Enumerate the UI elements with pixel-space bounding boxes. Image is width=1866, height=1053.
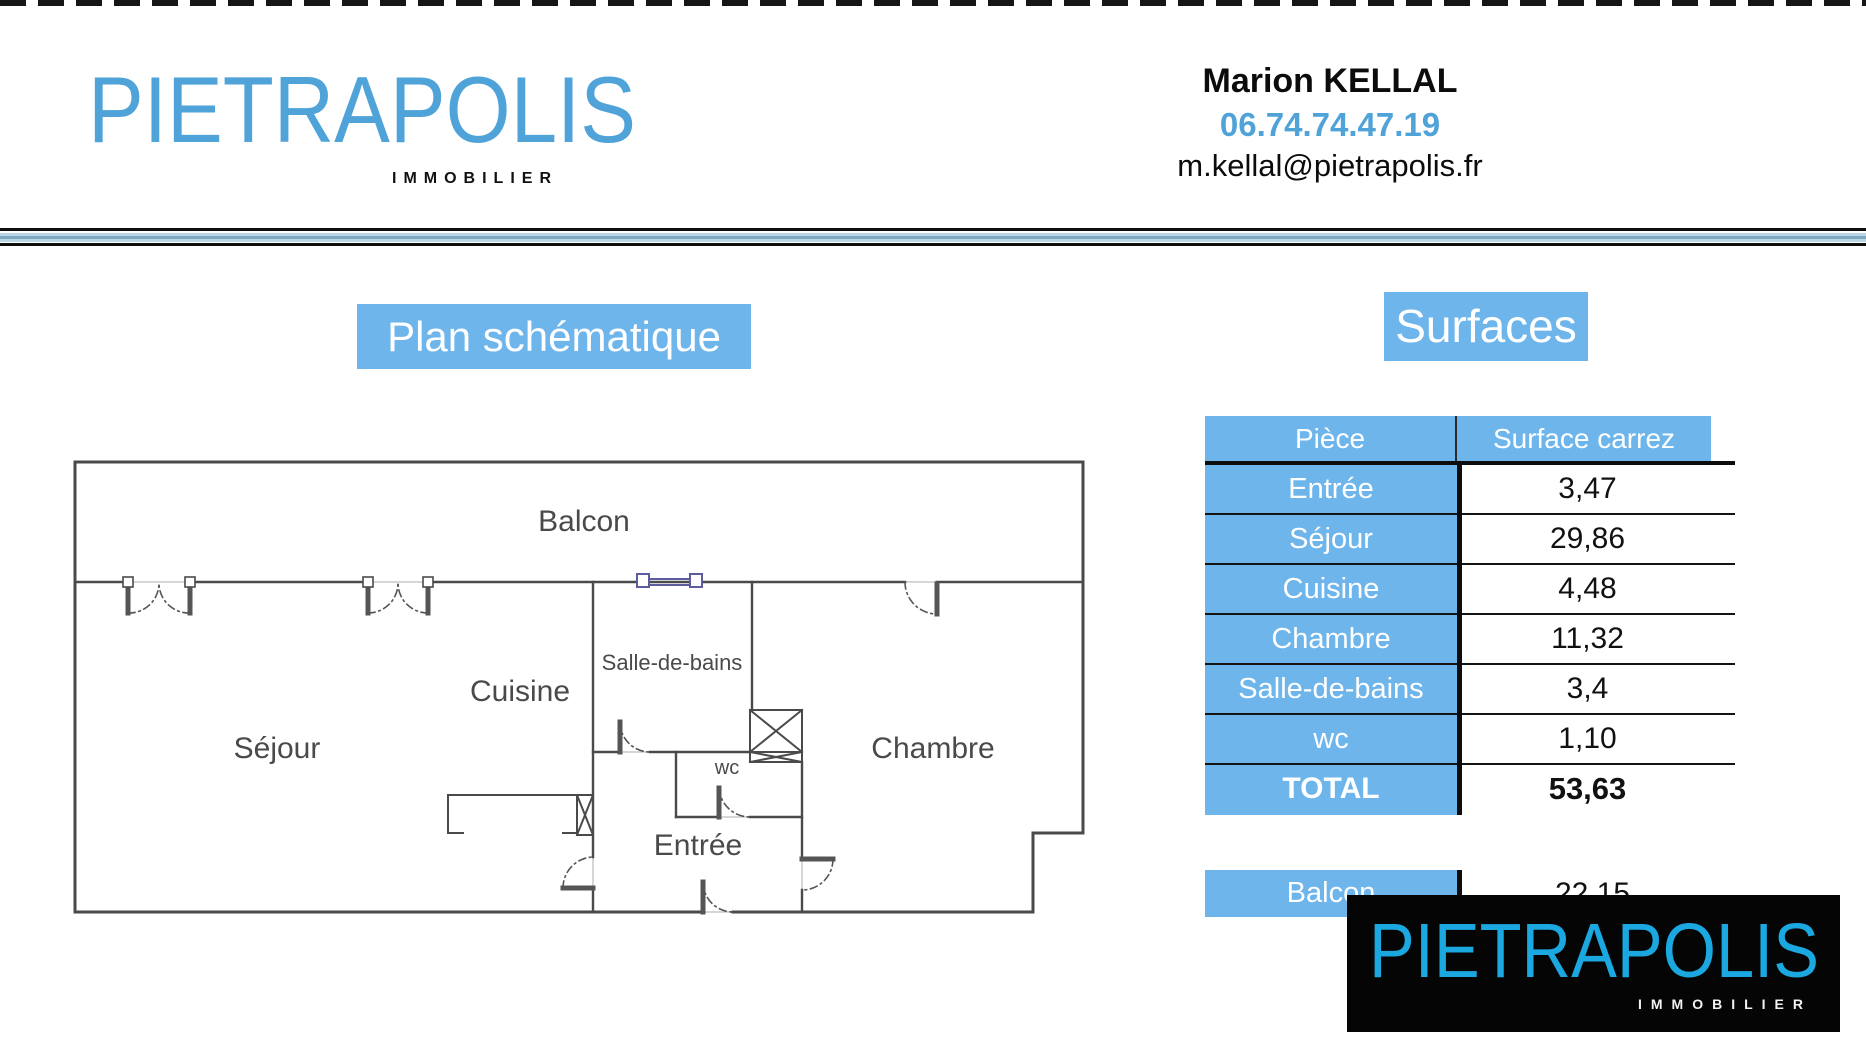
row-value: 11,32 bbox=[1462, 615, 1713, 663]
room-label-chambre: Chambre bbox=[853, 732, 1013, 766]
top-dashed-border bbox=[0, 0, 1866, 6]
table-row: wc 1,10 bbox=[1205, 715, 1735, 765]
footer-logo: PIETRAPOLIS bbox=[1347, 895, 1840, 995]
agent-email: m.kellal@pietrapolis.fr bbox=[1050, 148, 1610, 184]
table-total-row: TOTAL 53,63 bbox=[1205, 765, 1735, 815]
room-label-wc: wc bbox=[687, 757, 767, 780]
french-door-2-leaves bbox=[368, 586, 428, 613]
row-value: 4,48 bbox=[1462, 565, 1713, 613]
agent-name: Marion KELLAL bbox=[1050, 62, 1610, 101]
room-label-salle-de-bains: Salle-de-bains bbox=[584, 650, 760, 676]
surfaces-title-badge: Surfaces bbox=[1384, 292, 1588, 361]
plan-title-badge: Plan schématique bbox=[357, 304, 751, 369]
table-row: Séjour 29,86 bbox=[1205, 515, 1735, 565]
surfaces-table: Pièce Surface carrez Entrée 3,47 Séjour … bbox=[1205, 416, 1735, 815]
surfaces-table-header: Pièce Surface carrez bbox=[1205, 416, 1735, 461]
row-value: 3,47 bbox=[1462, 465, 1713, 513]
table-column-divider bbox=[1457, 465, 1462, 815]
room-label-sejour: Séjour bbox=[197, 732, 357, 766]
agent-phone: 06.74.74.47.19 bbox=[1050, 106, 1610, 144]
room-label-cuisine: Cuisine bbox=[440, 675, 600, 709]
row-label: Cuisine bbox=[1205, 565, 1457, 613]
table-row: Chambre 11,32 bbox=[1205, 615, 1735, 665]
french-door-1-leaves bbox=[128, 586, 190, 613]
brand-tagline: IMMOBILIER bbox=[392, 170, 602, 188]
brand-logo-text: PIETRAPOLIS bbox=[88, 57, 636, 162]
row-label: Entrée bbox=[1205, 465, 1457, 513]
column-header-piece: Pièce bbox=[1205, 416, 1457, 461]
brand-logo: PIETRAPOLIS bbox=[88, 52, 658, 162]
row-label: Chambre bbox=[1205, 615, 1457, 663]
row-value: 3,4 bbox=[1462, 665, 1713, 713]
window-symbol bbox=[637, 574, 702, 587]
room-label-balcon: Balcon bbox=[504, 505, 664, 539]
total-label: TOTAL bbox=[1205, 765, 1457, 815]
document-page: PIETRAPOLIS IMMOBILIER Marion KELLAL 06.… bbox=[0, 0, 1866, 1053]
row-label: wc bbox=[1205, 715, 1457, 763]
footer-logo-tagline: IMMOBILIER bbox=[1638, 996, 1812, 1012]
total-value: 53,63 bbox=[1462, 765, 1713, 815]
kitchen-counter bbox=[448, 795, 577, 833]
door-hinge-blocks bbox=[123, 577, 433, 587]
header-divider-top bbox=[0, 228, 1866, 231]
kitchen-hatched-box bbox=[577, 795, 593, 835]
table-row: Cuisine 4,48 bbox=[1205, 565, 1735, 615]
header-divider-blue bbox=[0, 233, 1866, 242]
header-divider-bottom bbox=[0, 243, 1866, 246]
row-value: 29,86 bbox=[1462, 515, 1713, 563]
footer-logo-text: PIETRAPOLIS bbox=[1369, 908, 1819, 994]
table-row: Salle-de-bains 3,4 bbox=[1205, 665, 1735, 715]
footer-logo-box: PIETRAPOLIS IMMOBILIER bbox=[1347, 895, 1840, 1032]
column-header-surface: Surface carrez bbox=[1457, 416, 1711, 461]
contact-block: Marion KELLAL 06.74.74.47.19 m.kellal@pi… bbox=[1050, 62, 1610, 184]
row-value: 1,10 bbox=[1462, 715, 1713, 763]
row-label: Séjour bbox=[1205, 515, 1457, 563]
row-label: Salle-de-bains bbox=[1205, 665, 1457, 713]
room-label-entree: Entrée bbox=[618, 829, 778, 863]
table-row: Entrée 3,47 bbox=[1205, 465, 1735, 515]
shaft-hatched-box bbox=[750, 710, 802, 762]
